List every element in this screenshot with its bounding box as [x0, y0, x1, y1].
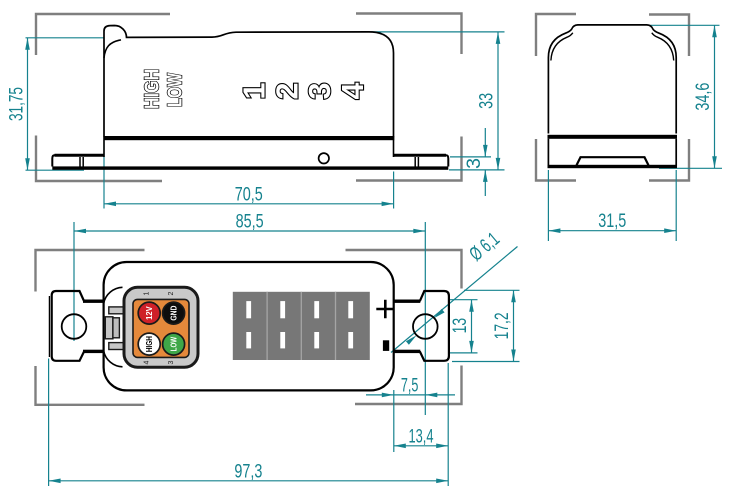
svg-text:34,6: 34,6: [692, 83, 714, 111]
svg-text:85,5: 85,5: [236, 211, 264, 233]
svg-text:31,5: 31,5: [598, 210, 626, 232]
svg-text:GND: GND: [170, 306, 179, 321]
svg-text:70,5: 70,5: [235, 183, 263, 205]
svg-text:12V: 12V: [145, 306, 154, 320]
svg-text:3: 3: [303, 83, 337, 100]
svg-text:4: 4: [336, 82, 370, 99]
svg-text:LOW: LOW: [164, 73, 187, 107]
svg-text:HIGH: HIGH: [145, 336, 154, 352]
svg-text:HIGH: HIGH: [141, 69, 164, 109]
svg-text:1: 1: [238, 82, 272, 99]
svg-text:13: 13: [449, 318, 471, 334]
svg-text:1: 1: [143, 291, 150, 295]
svg-text:97,3: 97,3: [234, 460, 262, 482]
svg-text:3: 3: [168, 361, 175, 365]
svg-text:13,4: 13,4: [409, 425, 434, 447]
svg-text:7,5: 7,5: [401, 374, 419, 396]
svg-text:2: 2: [270, 83, 304, 100]
svg-text:4: 4: [143, 361, 150, 365]
svg-text:2: 2: [168, 291, 175, 295]
svg-text:33: 33: [476, 93, 498, 109]
svg-text:3: 3: [463, 158, 485, 169]
svg-text:17,2: 17,2: [491, 312, 513, 339]
svg-text:LOW: LOW: [170, 337, 179, 352]
svg-text:31,75: 31,75: [6, 87, 28, 121]
